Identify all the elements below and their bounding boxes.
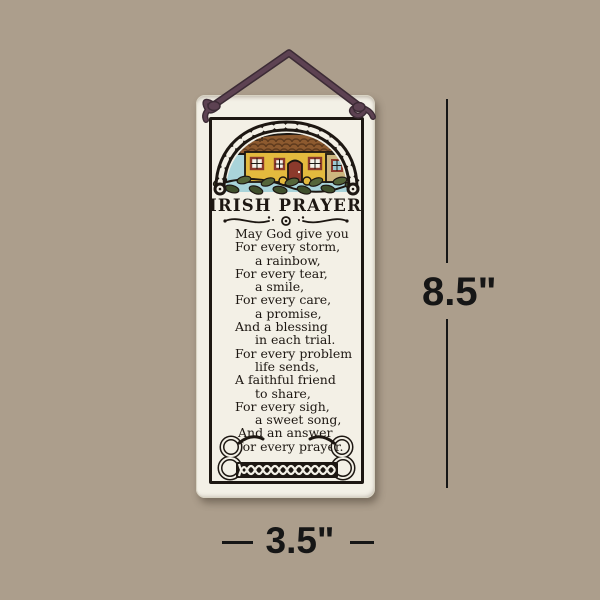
prayer-line: For every sigh, [235,400,365,413]
prayer-line: For every problem [235,347,365,360]
width-dimension-label: 3.5" [260,522,340,559]
prayer-line: A faithful friend [235,373,365,386]
prayer-line: a sweet song, [235,413,365,426]
plaque-title: IRISH PRAYER [196,196,375,215]
prayer-line: a promise, [235,307,365,320]
hanging-cord-icon [195,40,380,130]
height-dimension-line-bottom [446,319,448,488]
ceramic-plaque: IRISH PRAYER May God give you For every … [196,95,375,498]
width-dimension-line-right [350,541,374,544]
celtic-border-icon [208,432,365,485]
prayer-line: May God give you [235,227,365,240]
prayer-line: For every tear, [235,267,365,280]
height-dimension-line-top [446,99,448,263]
width-dimension-line-left [222,541,253,544]
prayer-line: life sends, [235,360,365,373]
prayer-line: And a blessing [235,320,365,333]
cord-knot [352,103,373,118]
prayer-line: For every storm, [235,240,365,253]
prayer-line: in each trial. [235,333,365,346]
cord-knot [205,102,220,121]
height-dimension-label: 8.5" [422,272,497,312]
prayer-text: May God give you For every storm, a rain… [235,227,365,453]
prayer-line: For every care, [235,293,365,306]
prayer-line: a rainbow, [235,254,365,267]
prayer-line: to share, [235,387,365,400]
prayer-line: a smile, [235,280,365,293]
cottage-illustration-icon [212,120,361,199]
product-dimension-image: IRISH PRAYER May God give you For every … [0,0,600,600]
